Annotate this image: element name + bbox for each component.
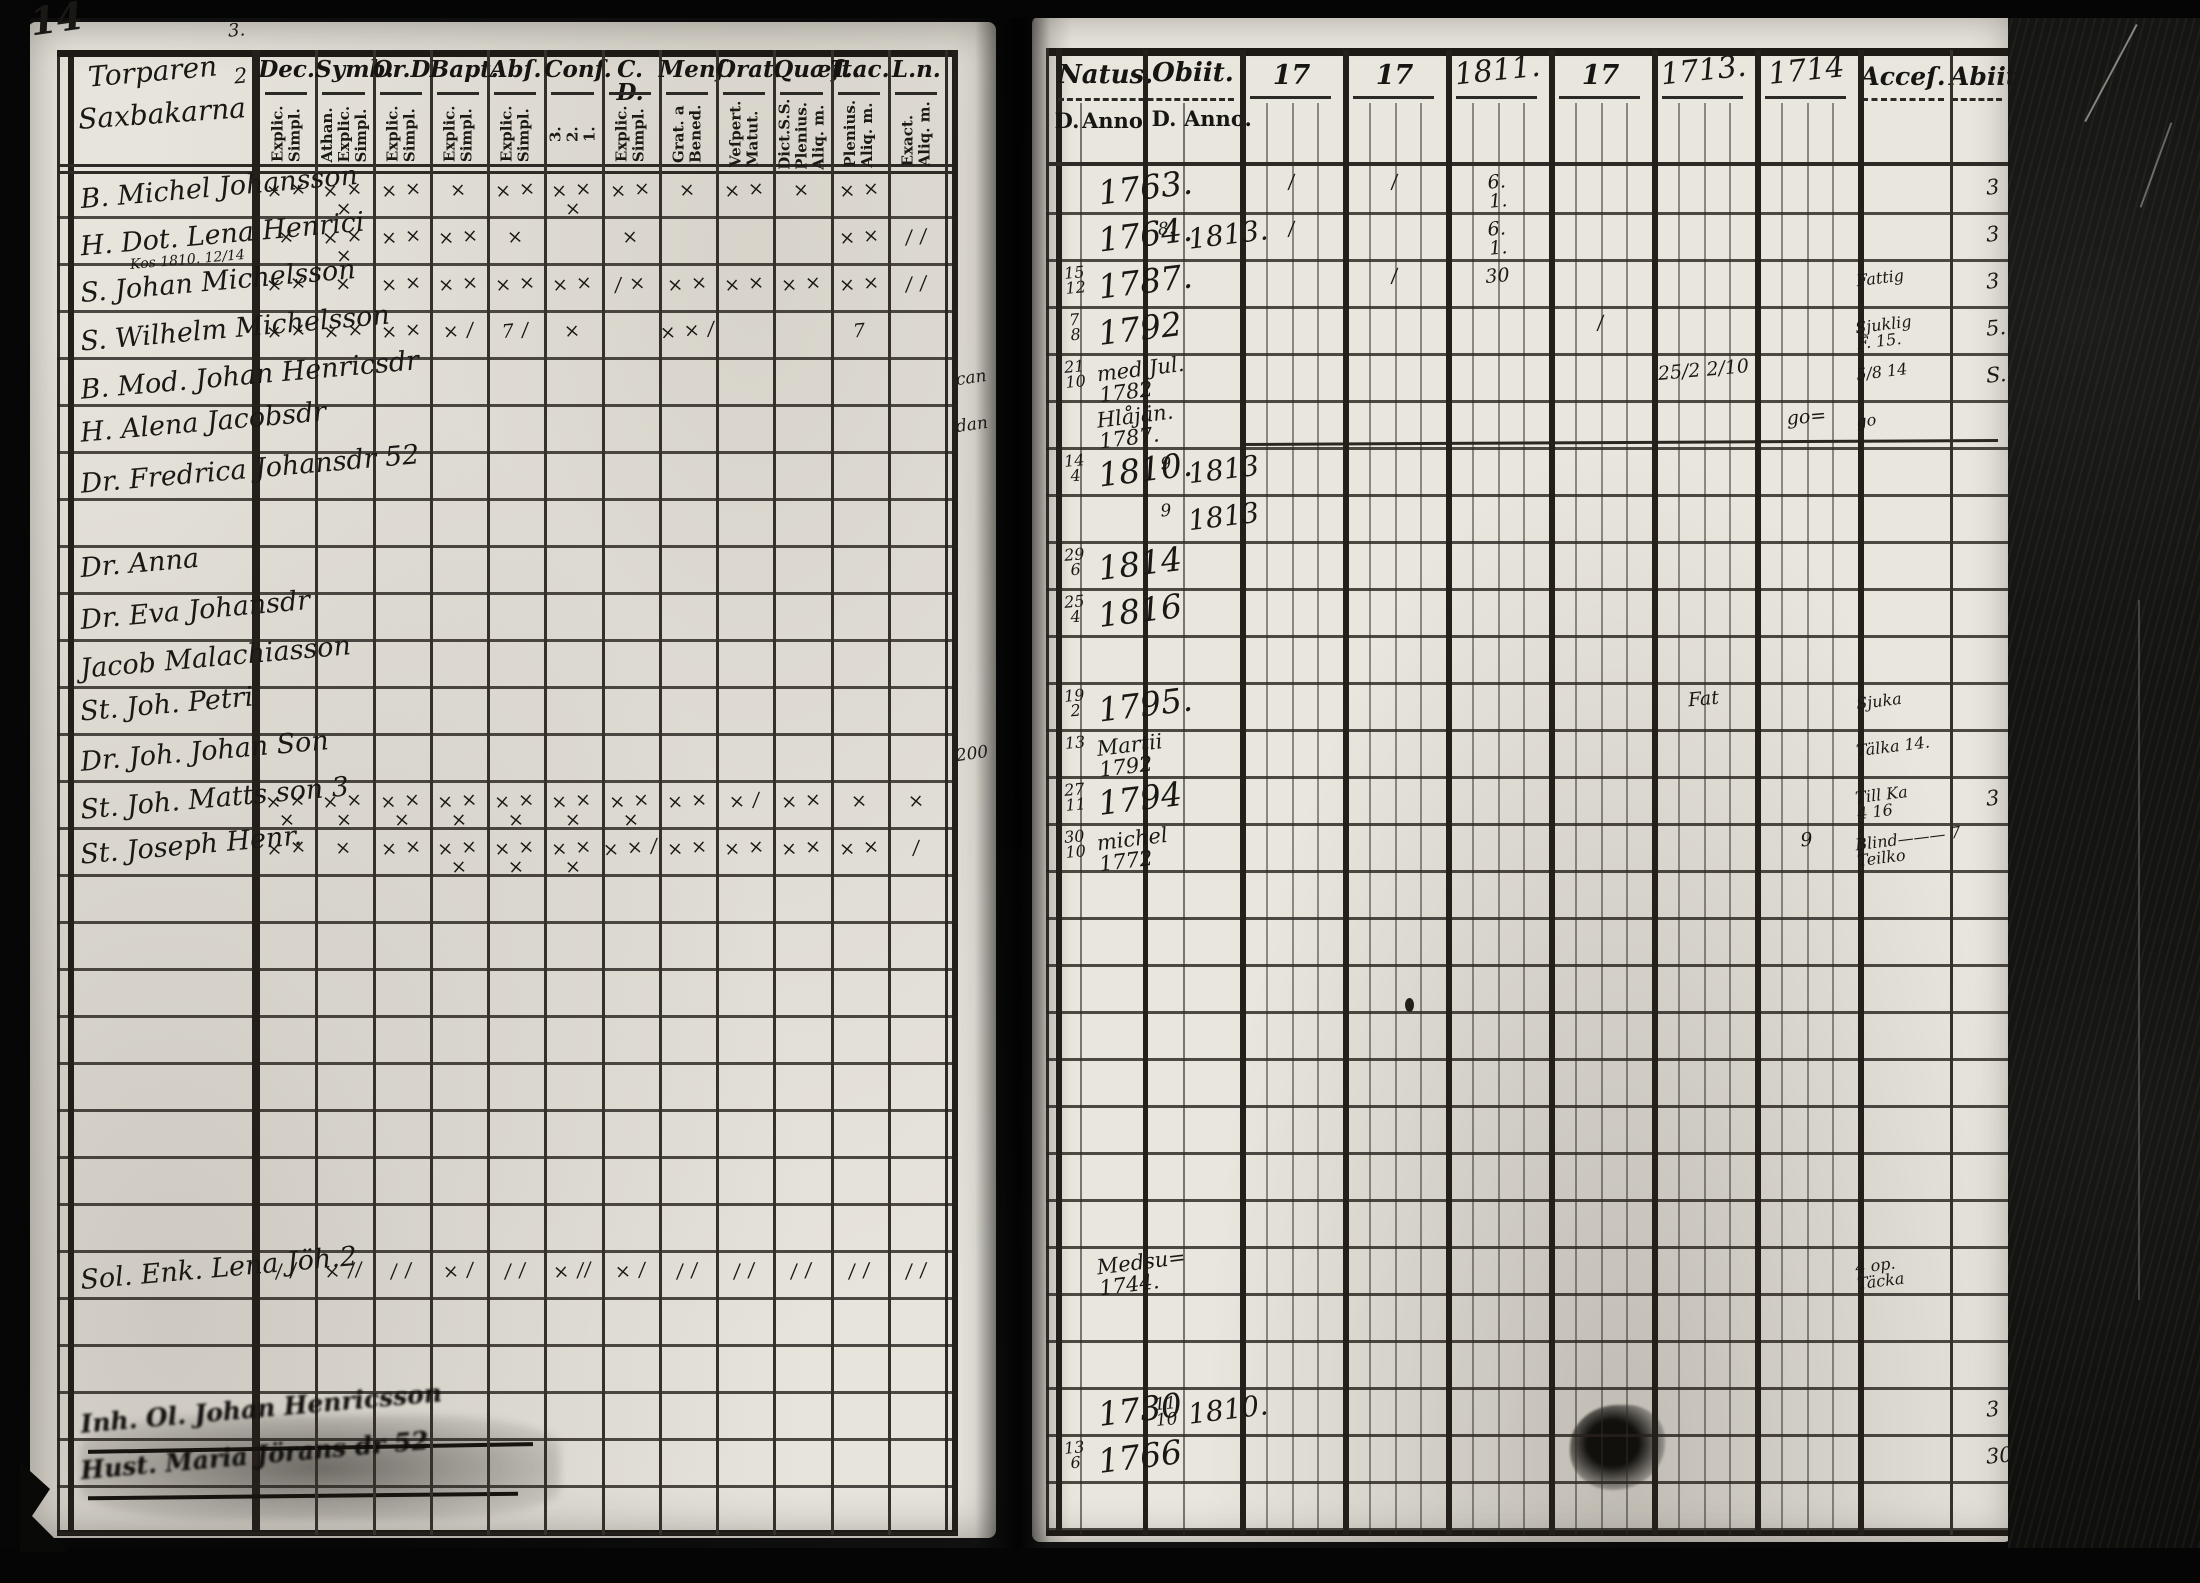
grid-marks: × × ×: [485, 837, 545, 881]
column-line: [373, 50, 376, 1535]
natus-day: 29 6: [1053, 545, 1097, 579]
year-column-title: 1811.: [1445, 51, 1551, 92]
natus-year: 1816: [1096, 589, 1183, 633]
year-subcolumn-line: [1472, 103, 1474, 1535]
grid-marks: × ×: [773, 837, 832, 861]
edge-note: 3: [1985, 268, 2027, 293]
obiit-day: 9: [1147, 501, 1184, 520]
natus-year: Martii 1792: [1096, 731, 1167, 782]
grid-marks: × ×: [315, 320, 374, 344]
obiit-header: Obiit.: [1147, 60, 1239, 86]
column-subheader: Explic. Simpl.: [258, 98, 315, 170]
column-title-underline: [723, 92, 765, 95]
grid-marks: × ×: [830, 837, 889, 861]
grid-marks: × × ×: [428, 837, 488, 881]
natus-year: michel 1772: [1096, 825, 1172, 876]
column-title: Bapt.: [430, 58, 487, 81]
edge-note: 30.: [1985, 1443, 2027, 1468]
header-scribble-side: 2: [233, 65, 248, 87]
grid-marks: × × ×: [543, 790, 603, 834]
edge-note: 5.: [1985, 315, 2027, 340]
grid-marks: × × ×: [543, 179, 603, 223]
natus-day: 19 2: [1053, 686, 1097, 720]
obiit-d-separator: [1183, 103, 1185, 1535]
grid-marks: × ×: [830, 179, 889, 203]
column-title-underline: [380, 92, 422, 95]
natus-day: 27 11: [1053, 780, 1097, 814]
column-subheader-text: Dict.S.S. Plenius. Aliq. m.: [777, 98, 827, 169]
column-subheader-text: Grat. a Bened.: [671, 105, 705, 163]
column-title: Abſ.: [487, 58, 544, 81]
column-subheader: Explic. Simpl.: [430, 98, 487, 170]
grid-marks: × ×: [372, 273, 431, 297]
household-title-line2: Saxbakarna: [77, 94, 247, 134]
grid-marks: × ×: [773, 273, 832, 297]
edge-note: 3: [1985, 785, 2027, 810]
grid-marks: × × /: [658, 320, 717, 344]
column-line: [602, 50, 605, 1535]
edge-note: 3: [1985, 221, 2027, 246]
obiit-d-label: D.: [1146, 108, 1182, 129]
column-title: Menſ.: [659, 58, 716, 81]
grid-marks: × × ×: [428, 790, 488, 834]
grid-marks: × ×: [715, 179, 774, 203]
year-subcolumn-line: [1369, 103, 1371, 1535]
column-subheader: 3. 2. 1.: [544, 98, 601, 170]
column-title: L.n.: [888, 58, 945, 81]
grid-marks: × ×: [830, 273, 889, 297]
grid-marks: × ×: [257, 837, 316, 861]
grid-marks: × ×: [257, 179, 316, 203]
column-line: [888, 50, 891, 1535]
grid-marks: × × ×: [485, 790, 545, 834]
column-subheader-text: 3. 2. 1.: [548, 126, 598, 142]
header-scribble-top: 3.: [227, 21, 246, 41]
natus-day: 30 10: [1053, 827, 1097, 861]
year-subcolumn-line: [1498, 103, 1500, 1535]
grid-marks: × ×: [601, 179, 660, 203]
grid-marks: × ×: [658, 273, 717, 297]
natus-day: 15 12: [1053, 263, 1097, 297]
column-subheader-text: Explic. Simpl.: [270, 106, 304, 163]
year-subcolumn-line: [1266, 103, 1268, 1535]
natus-day: 14 4: [1053, 451, 1097, 485]
column-subheader: Explic. Simpl.: [487, 98, 544, 170]
natus-day: 7 8: [1053, 310, 1097, 344]
year-column-line: [1652, 50, 1658, 1535]
margin-note: can: [955, 368, 988, 389]
scanned-parish-register-spread: 14 Torparen Saxbakarna 3. 2 Natus. Obiit…: [0, 0, 2200, 1583]
grid-marks: × ×: [372, 179, 431, 203]
year-subcolumn-line: [1523, 103, 1525, 1535]
grid-marks: × × ×: [371, 790, 431, 834]
column-title-underline: [551, 92, 593, 95]
year-subcolumn-line: [1807, 103, 1809, 1535]
year-subcolumn-line: [1781, 103, 1783, 1535]
grid-marks: × ×: [257, 273, 316, 297]
natus-header: Natus.: [1058, 62, 1146, 88]
year-column-title: 17: [1240, 60, 1343, 91]
natus-day: 13 6: [1053, 1438, 1097, 1472]
column-line: [430, 50, 433, 1535]
year-column-title: 1714: [1754, 51, 1860, 92]
column-subheader-text: Veſpert. Matut.: [728, 101, 762, 167]
grid-marks: × ×: [544, 273, 603, 297]
column-line: [659, 50, 662, 1535]
column-title-underline: [265, 92, 307, 95]
grid-marks: × ×: [372, 837, 431, 861]
grid-marks: × ×: [486, 273, 545, 297]
year-title-underline: [1765, 96, 1846, 99]
year-subcolumn-line: [1704, 103, 1706, 1535]
natus-day: 25 4: [1053, 592, 1097, 626]
grid-marks: × ×: [830, 226, 889, 250]
page-number: 14: [28, 0, 86, 42]
column-line: [716, 50, 719, 1535]
natus-day: 21 10: [1053, 357, 1097, 391]
grid-marks: × ×: [773, 790, 832, 814]
column-title: Orat.: [716, 58, 773, 81]
column-title-underline: [780, 92, 822, 95]
natus-year: 1792: [1096, 307, 1183, 351]
column-title-underline: [609, 92, 651, 95]
abiit-header: Abiit: [1950, 64, 2008, 89]
column-line: [831, 50, 834, 1535]
column-title-underline: [494, 92, 536, 95]
column-subheader-text: Explic. Simpl.: [613, 106, 647, 163]
year-subcolumn-line: [1832, 103, 1834, 1535]
natus-d-label: D.: [1052, 110, 1082, 131]
year-subcolumn-line: [1317, 103, 1319, 1535]
abiit-underline: [1952, 98, 2002, 101]
column-subheader: Dict.S.S. Plenius. Aliq. m.: [773, 98, 830, 170]
year-title-underline: [1353, 96, 1434, 99]
year-subcolumn-line: [1292, 103, 1294, 1535]
column-title: Symb.: [315, 58, 372, 81]
year-title-underline: [1662, 96, 1743, 99]
year-subcolumn-line: [1395, 103, 1397, 1535]
grid-marks: × ×: [658, 837, 717, 861]
column-title: T.ac.: [831, 58, 888, 81]
grid-marks: × × ×: [600, 790, 660, 834]
grid-marks: × × ×: [543, 837, 603, 881]
obiit-day: 9: [1147, 454, 1184, 473]
column-subheader-text: Explic. Simpl.: [384, 106, 418, 163]
column-subheader-text: Explic. Simpl.: [499, 106, 533, 163]
column-title-underline: [838, 92, 880, 95]
year-column-title: 1713.: [1651, 51, 1757, 92]
year-column-line: [1549, 50, 1555, 1535]
column-subheader: Athan. Explic. Simpl.: [315, 98, 372, 170]
grid-marks: × ×: [429, 226, 488, 250]
column-subheader: Grat. a Bened.: [659, 98, 716, 170]
year-column-title: 17: [1343, 60, 1446, 91]
column-subheader-text: Explic. Simpl.: [442, 106, 476, 163]
column-subheader: Exact. Aliq. m.: [888, 98, 945, 170]
year-subcolumn-line: [1729, 103, 1731, 1535]
year-subcolumn-line: [1678, 103, 1680, 1535]
edge-note: S.: [1985, 362, 2027, 387]
obiit-day: 8.: [1147, 219, 1184, 238]
grid-marks: × ×: [372, 226, 431, 250]
grid-marks: × ×: [486, 179, 545, 203]
grid-marks: × × ×: [314, 790, 374, 834]
natus-year: 1814: [1096, 542, 1183, 586]
column-line: [773, 50, 776, 1535]
year-column-title: 17: [1549, 60, 1652, 91]
column-title-underline: [666, 92, 708, 95]
column-title: Dec.: [258, 58, 315, 81]
column-title-underline: [322, 92, 364, 95]
grid-marks: × ×: [658, 790, 717, 814]
grid-marks: × ×: [429, 273, 488, 297]
year-subcolumn-line: [1420, 103, 1422, 1535]
natus-anno-label: Anno.: [1082, 110, 1144, 131]
grid-marks: × × /: [601, 837, 660, 861]
year-title-underline: [1456, 96, 1537, 99]
obiit-day: 11 10: [1147, 1394, 1186, 1429]
edge-note: 3: [1985, 174, 2027, 199]
column-subheader-text: Plenius. Aliq. m.: [842, 100, 876, 168]
column-line: [487, 50, 490, 1535]
edge-note: 3: [1985, 1396, 2027, 1421]
year-column-line: [1240, 50, 1246, 1535]
year-column-line: [1755, 50, 1761, 1535]
grid-marks: × ×: [257, 320, 316, 344]
obiit-anno-label: Anno.: [1184, 108, 1242, 129]
column-subheader-text: Exact. Aliq. m.: [900, 101, 934, 166]
column-line: [544, 50, 547, 1535]
column-title: Quæſt.: [773, 58, 830, 81]
column-title-underline: [437, 92, 479, 95]
year-title-underline: [1250, 96, 1331, 99]
natus-year: 1766: [1096, 1435, 1183, 1479]
column-title-underline: [895, 92, 937, 95]
margin-note: dan: [955, 415, 989, 437]
grid-marks: × ×: [715, 837, 774, 861]
column-subheader: Explic. Simpl.: [373, 98, 430, 170]
grid-marks: × ×: [372, 320, 431, 344]
column-title: Or.D.: [373, 58, 430, 81]
grid-marks: × ×: [715, 273, 774, 297]
acces-header: Acceſ.: [1858, 64, 1948, 89]
acces-underline: [1862, 98, 1944, 101]
household-title-line1: Torparen: [87, 52, 218, 92]
content-overlay: 14 Torparen Saxbakarna 3. 2 Natus. Obiit…: [0, 0, 2200, 1583]
column-subheader-text: Athan. Explic. Simpl.: [319, 106, 369, 163]
column-subheader: Plenius. Aliq. m.: [831, 98, 888, 170]
column-subheader: Veſpert. Matut.: [716, 98, 773, 170]
column-subheader: Explic. Simpl.: [602, 98, 659, 170]
natus-year: 1794: [1096, 777, 1183, 821]
margin-note: 200: [955, 744, 990, 766]
year-title-underline: [1559, 96, 1640, 99]
column-title: Conf.: [544, 58, 601, 81]
